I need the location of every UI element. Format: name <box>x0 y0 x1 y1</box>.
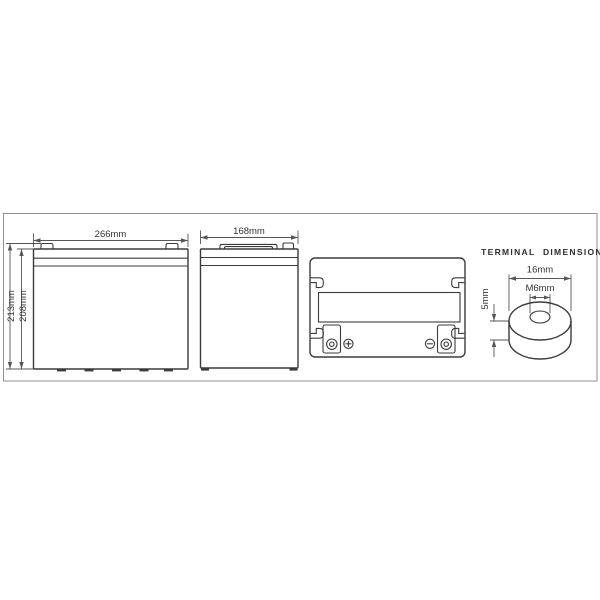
front-width-dimension: 266mm <box>34 229 189 247</box>
top-left-terminal-hole <box>330 342 334 346</box>
side-depth-dimension: 168mm <box>201 226 299 244</box>
top-left-terminal-post <box>327 339 337 349</box>
front-case-height-dimension: 208mm <box>17 249 34 369</box>
terminal-washer-drawing <box>509 302 571 359</box>
front-battery-body <box>34 249 189 369</box>
terminal-thread-dimension: M6mm <box>525 283 554 313</box>
side-terminal <box>283 243 294 249</box>
top-handle-recess <box>319 293 461 323</box>
front-overall-height-label: 213mm <box>6 290 17 322</box>
front-view: 266mm 213mm 208mm <box>6 229 188 371</box>
terminal-detail-title: TERMINAL DIMENSION <box>481 247 600 257</box>
top-right-terminal-post <box>441 339 451 349</box>
side-view: 168mm <box>201 226 299 371</box>
terminal-outer-diameter-label: 16mm <box>527 265 553 276</box>
terminal-detail: TERMINAL DIMENSION 16mm M6mm 5mm <box>480 247 600 359</box>
terminal-thread-label: M6mm <box>525 283 554 294</box>
terminal-thickness-dimension: 5mm <box>480 288 510 357</box>
side-battery-body <box>201 249 299 368</box>
negative-terminal-icon <box>425 339 434 348</box>
top-corner-clips <box>311 278 465 338</box>
battery-dimension-drawing: 266mm 213mm 208mm <box>0 0 600 600</box>
front-width-label: 266mm <box>95 229 127 240</box>
side-depth-label: 168mm <box>233 226 265 237</box>
top-right-terminal-hole <box>444 342 448 346</box>
positive-terminal-icon <box>344 339 353 348</box>
drawing-frame <box>4 214 598 382</box>
terminal-thickness-label: 5mm <box>480 288 491 309</box>
front-case-height-label: 208mm <box>18 290 29 322</box>
top-view <box>310 258 465 357</box>
technical-drawing-canvas: 266mm 213mm 208mm <box>0 0 600 600</box>
